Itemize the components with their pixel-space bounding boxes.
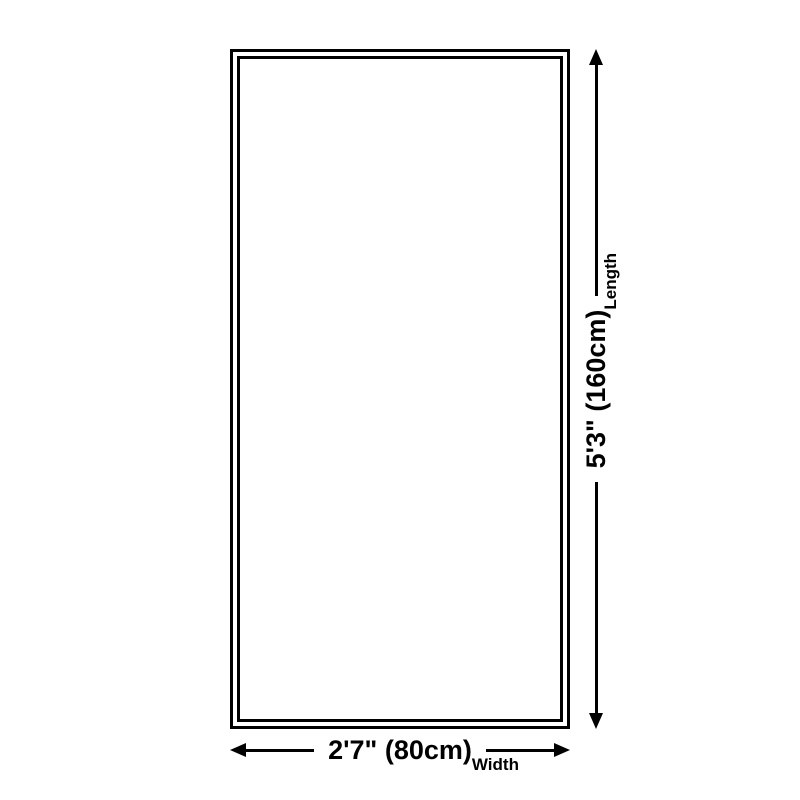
length-dimension: 5'3" (160cm) Length xyxy=(576,49,616,729)
arrow-up-icon xyxy=(589,49,603,65)
width-label: Width xyxy=(472,756,519,773)
product-outline-inner xyxy=(237,56,563,722)
width-dimension: 2'7" (80cm) Width xyxy=(230,730,570,770)
width-dimension-line-left xyxy=(246,749,314,752)
width-dimension-line-right: Width xyxy=(486,749,554,752)
product-outline xyxy=(230,49,570,729)
arrow-down-icon xyxy=(589,713,603,729)
length-dimension-line-lower xyxy=(595,482,598,713)
arrow-right-icon xyxy=(554,743,570,757)
length-label: Length xyxy=(602,253,619,310)
dimension-diagram: 2'7" (80cm) Width 5'3" (160cm) Length xyxy=(0,0,800,800)
arrow-left-icon xyxy=(230,743,246,757)
length-value: 5'3" (160cm) xyxy=(583,310,610,469)
length-dimension-line-upper: Length xyxy=(595,65,598,296)
width-value: 2'7" (80cm) xyxy=(328,737,472,764)
